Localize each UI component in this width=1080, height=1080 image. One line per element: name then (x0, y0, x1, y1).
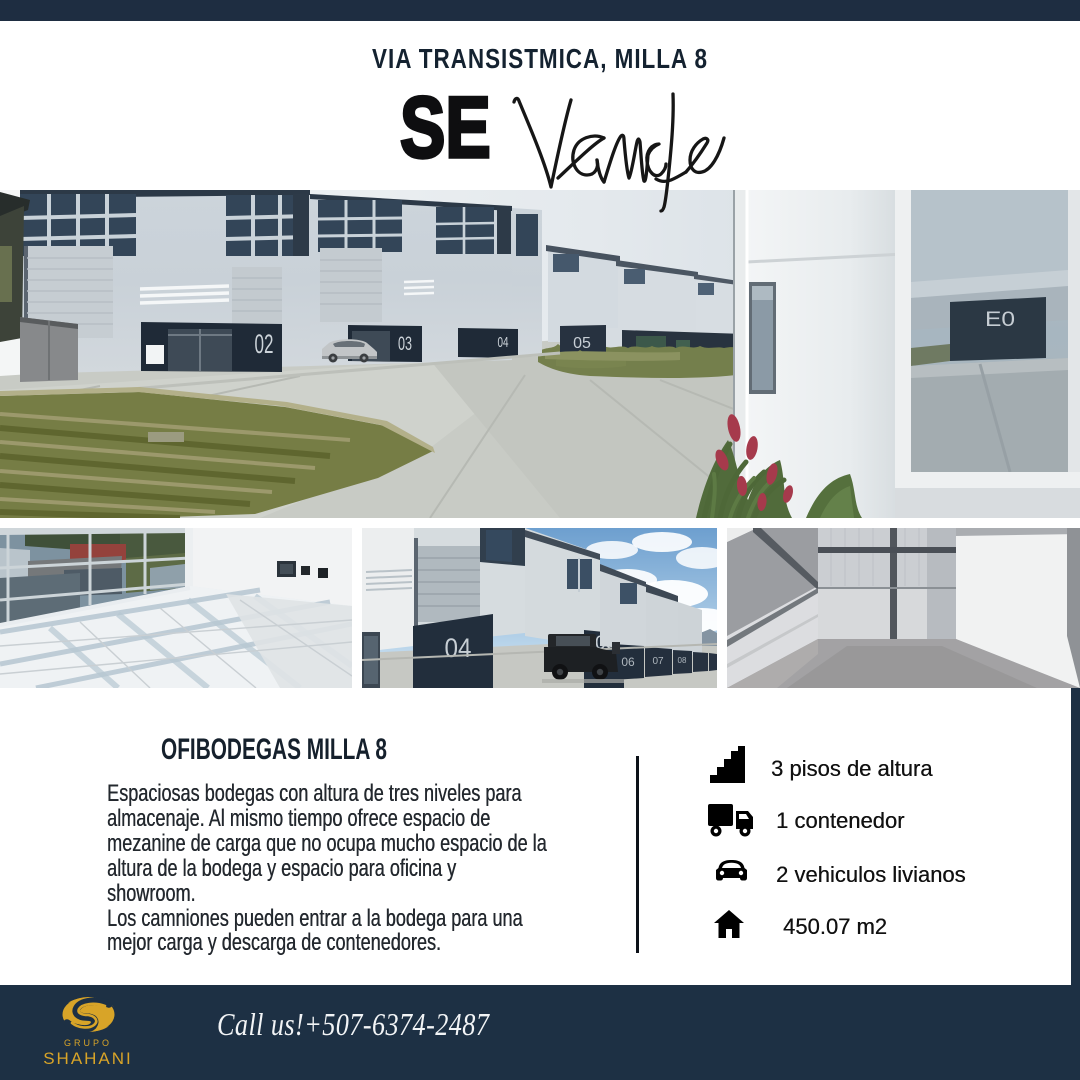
svg-text:04: 04 (498, 334, 509, 351)
svg-text:06: 06 (621, 655, 635, 669)
svg-text:08: 08 (678, 656, 687, 665)
svg-text:02: 02 (255, 329, 274, 359)
svg-text:05: 05 (573, 335, 591, 352)
svg-text:04: 04 (445, 633, 472, 663)
svg-text:03: 03 (398, 334, 412, 355)
svg-text:07: 07 (652, 656, 664, 667)
svg-text:E0: E0 (985, 308, 1015, 331)
